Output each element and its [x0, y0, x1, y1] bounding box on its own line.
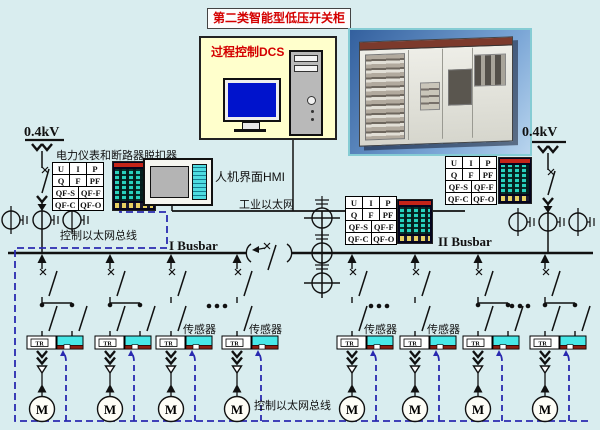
table-cell-p: P	[480, 157, 497, 169]
sensor-bus-drop	[192, 353, 195, 421]
meter-function-table: U I P Q F PF QF-S QF-F QF-C QF-O	[345, 196, 397, 245]
table-cell-qf-c: QF-C	[446, 193, 472, 205]
tower-led	[311, 118, 314, 121]
table-cell-f: F	[70, 175, 87, 187]
table-cell-qf-c: QF-C	[346, 233, 372, 245]
tr-label: TR	[35, 341, 44, 347]
table-cell-f: F	[363, 209, 380, 221]
motor-label: M	[409, 402, 421, 417]
meter-function-table: U I P Q F PF QF-S QF-F QF-C QF-O	[52, 162, 104, 211]
meter-function-table: U I P Q F PF QF-S QF-F QF-C QF-O	[445, 156, 497, 205]
table-cell-f: F	[463, 169, 480, 181]
table-cell-pf: PF	[380, 209, 397, 221]
motor-feeder: TRM	[337, 254, 393, 422]
ellipsis-dot	[526, 304, 531, 309]
tr-label: TR	[164, 341, 173, 347]
sensor-bus-drop	[131, 353, 134, 421]
table-cell-qf-s: QF-S	[346, 221, 372, 233]
table-cell-i: I	[463, 157, 480, 169]
motor-label: M	[346, 402, 358, 417]
sensor-bus-drop	[63, 353, 66, 421]
cabinet-divider	[472, 48, 473, 138]
ellipsis-dot	[369, 304, 374, 309]
monitor-icon	[223, 78, 281, 122]
table-cell-qf-f: QF-F	[371, 221, 397, 233]
table-cell-q: Q	[346, 209, 363, 221]
table-cell-qf-o: QF-O	[78, 199, 104, 211]
table-cell-u: U	[346, 197, 363, 209]
motor-label: M	[104, 402, 116, 417]
sensor-bus-drop	[373, 353, 376, 421]
breaker-stack	[365, 53, 405, 140]
tower-led	[311, 110, 314, 113]
monitor-screen	[228, 83, 276, 117]
meter-red-bar	[399, 201, 431, 205]
table-cell-q: Q	[446, 169, 463, 181]
tr-label: TR	[408, 341, 417, 347]
tr-label: TR	[538, 341, 547, 347]
meter-display	[400, 207, 430, 234]
table-cell-u: U	[53, 163, 70, 175]
table-cell-qf-o: QF-O	[371, 233, 397, 245]
table-cell-pf: PF	[87, 175, 104, 187]
cabinet-top-strip	[360, 37, 512, 50]
page-title: 第二类智能型低压开关柜	[207, 8, 351, 29]
table-cell-qf-c: QF-C	[53, 199, 79, 211]
tower-button	[307, 96, 316, 105]
motor-label: M	[539, 402, 551, 417]
cabinet-detail	[420, 82, 440, 111]
motor-feeder: TRM	[95, 254, 155, 422]
table-cell-i: I	[70, 163, 87, 175]
sensor-label: 传感器	[249, 321, 282, 337]
smart-meter-right	[498, 157, 532, 204]
monitor-base	[234, 129, 266, 132]
table-cell-qf-f: QF-F	[78, 187, 104, 199]
cabinet-divider	[408, 50, 409, 140]
table-cell-i: I	[363, 197, 380, 209]
ellipsis-dot	[377, 304, 382, 309]
industrial-ethernet-label: 工业以太网	[239, 196, 294, 212]
busbar-2-label: II Busbar	[438, 234, 492, 250]
ellipsis-dot	[215, 304, 220, 309]
table-cell-pf: PF	[480, 169, 497, 181]
meter-red-bar	[500, 159, 530, 163]
motor-label: M	[472, 402, 484, 417]
ellipsis-dot	[207, 304, 212, 309]
motor-feeder: TRM	[156, 254, 212, 422]
hmi-label: 人机界面HMI	[215, 168, 285, 185]
cabinet-detail	[448, 69, 472, 106]
tr-label: TR	[103, 341, 112, 347]
ellipsis-dot	[223, 304, 228, 309]
table-cell-qf-s: QF-S	[446, 181, 472, 193]
dcs-panel: 过程控制DCS	[199, 36, 337, 140]
control-bus-label-left: 控制以太网总线	[60, 227, 137, 243]
sensor-label: 传感器	[183, 321, 216, 337]
sensor-label: 传感器	[427, 321, 460, 337]
ellipsis-dot	[385, 304, 390, 309]
tower-drive-slot	[294, 55, 318, 62]
busbar-1-label: I Busbar	[169, 238, 218, 254]
meter-digits	[501, 196, 529, 201]
table-cell-u: U	[446, 157, 463, 169]
motor-label: M	[231, 402, 243, 417]
meter-display	[501, 165, 529, 194]
switchgear-cabinet-photo	[348, 28, 532, 156]
computer-tower-icon	[289, 50, 323, 136]
table-cell-qf-o: QF-O	[471, 193, 497, 205]
hmi-keypad	[192, 164, 207, 200]
table-cell-qf-s: QF-S	[53, 187, 79, 199]
sensor-bus-drop	[566, 353, 569, 421]
voltage-label-right: 0.4kV	[522, 125, 557, 141]
dcs-label: 过程控制DCS	[211, 43, 284, 60]
motor-label: M	[165, 402, 177, 417]
diagram-page: TRMTRMTRMTRMTRMTRMTRMTRM 第二类智能型低压开关柜 过程控…	[0, 0, 600, 430]
control-bus-label-bottom: 控制以太网总线	[254, 397, 331, 413]
hmi-screen	[150, 166, 189, 198]
cabinet-row	[359, 36, 513, 146]
table-cell-q: Q	[53, 175, 70, 187]
hmi-device	[143, 158, 213, 206]
table-cell-p: P	[87, 163, 104, 175]
motor-feeder: TRM	[27, 254, 87, 422]
tower-drive-slot	[294, 65, 318, 72]
tr-label: TR	[230, 341, 239, 347]
meter-digits	[400, 236, 430, 241]
motor-feeder: TRM	[463, 254, 523, 422]
sensor-bus-drop	[499, 353, 502, 421]
tr-label: TR	[345, 341, 354, 347]
tr-label: TR	[471, 341, 480, 347]
sensor-bus-drop	[436, 353, 439, 421]
table-cell-p: P	[380, 197, 397, 209]
motor-label: M	[36, 402, 48, 417]
smart-meter-middle	[397, 199, 433, 244]
ellipsis-dot	[510, 304, 515, 309]
motor-feeder: TRM	[530, 254, 590, 422]
voltage-label-left: 0.4kV	[24, 125, 59, 141]
motor-feeder: TRM	[400, 254, 456, 422]
table-cell-qf-f: QF-F	[471, 181, 497, 193]
cabinet-detail	[474, 54, 506, 87]
cabinet-divider	[442, 49, 443, 139]
ellipsis-dot	[518, 304, 523, 309]
sensor-label: 传感器	[364, 321, 397, 337]
